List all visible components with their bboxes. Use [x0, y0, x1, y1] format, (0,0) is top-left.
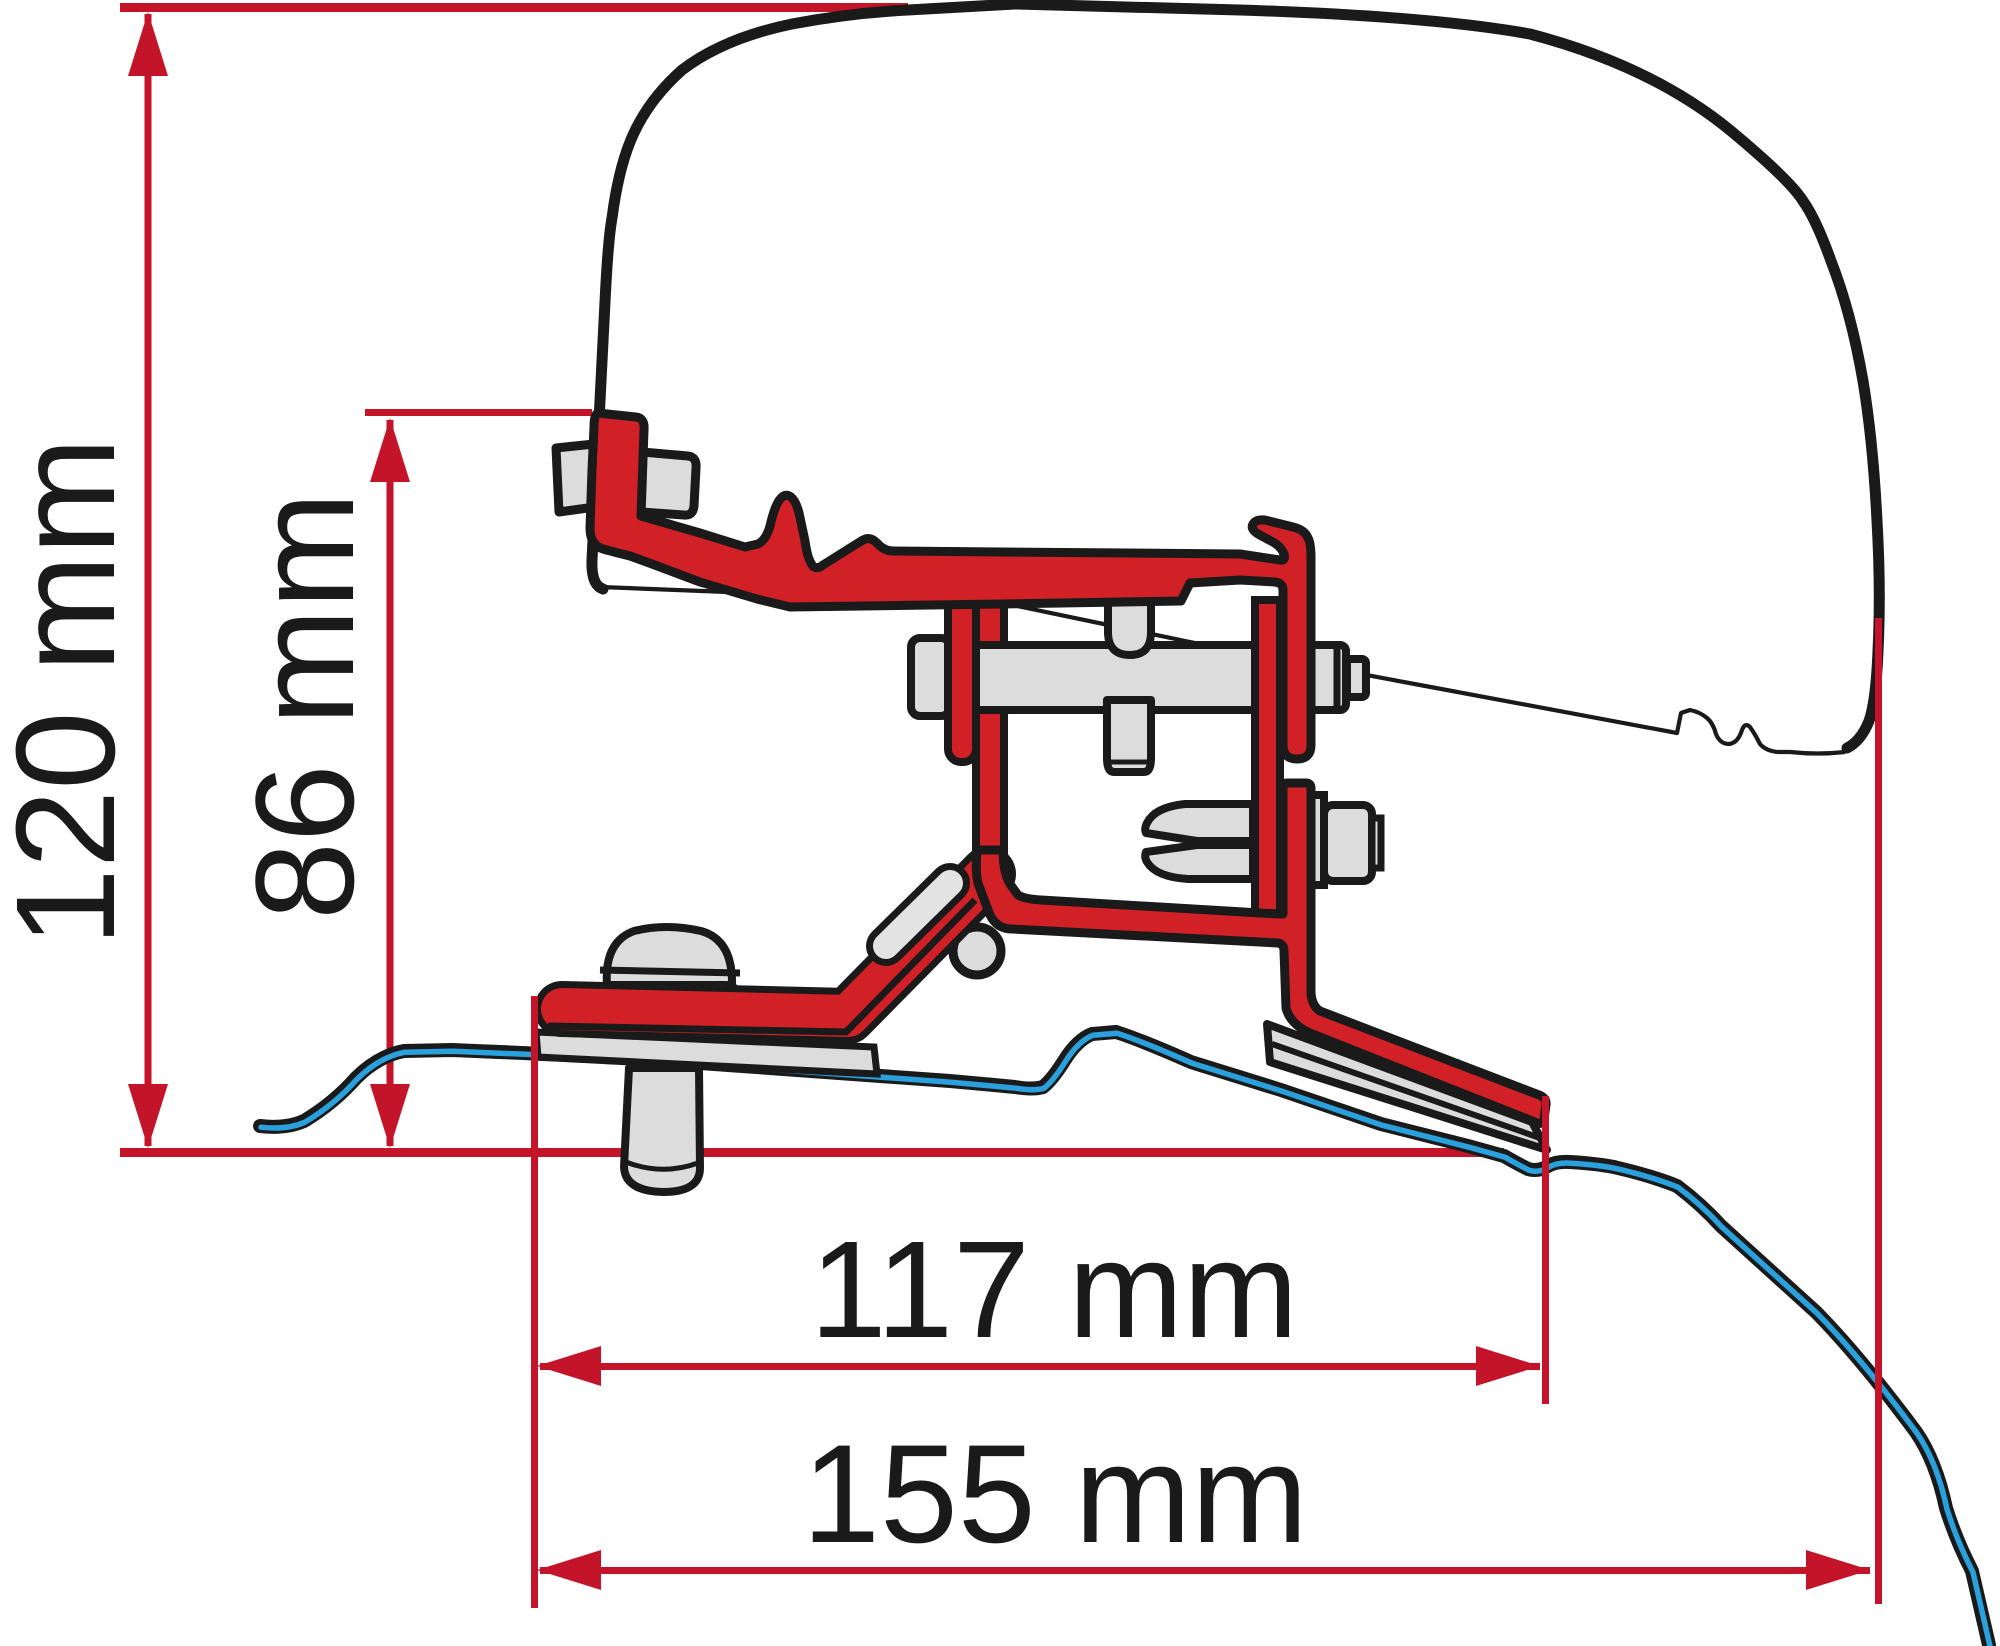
svg-text:86 mm: 86 mm — [226, 492, 383, 920]
svg-text:155 mm: 155 mm — [802, 1415, 1308, 1572]
svg-text:120 mm: 120 mm — [0, 437, 144, 946]
svg-text:117 mm: 117 mm — [810, 1213, 1298, 1367]
